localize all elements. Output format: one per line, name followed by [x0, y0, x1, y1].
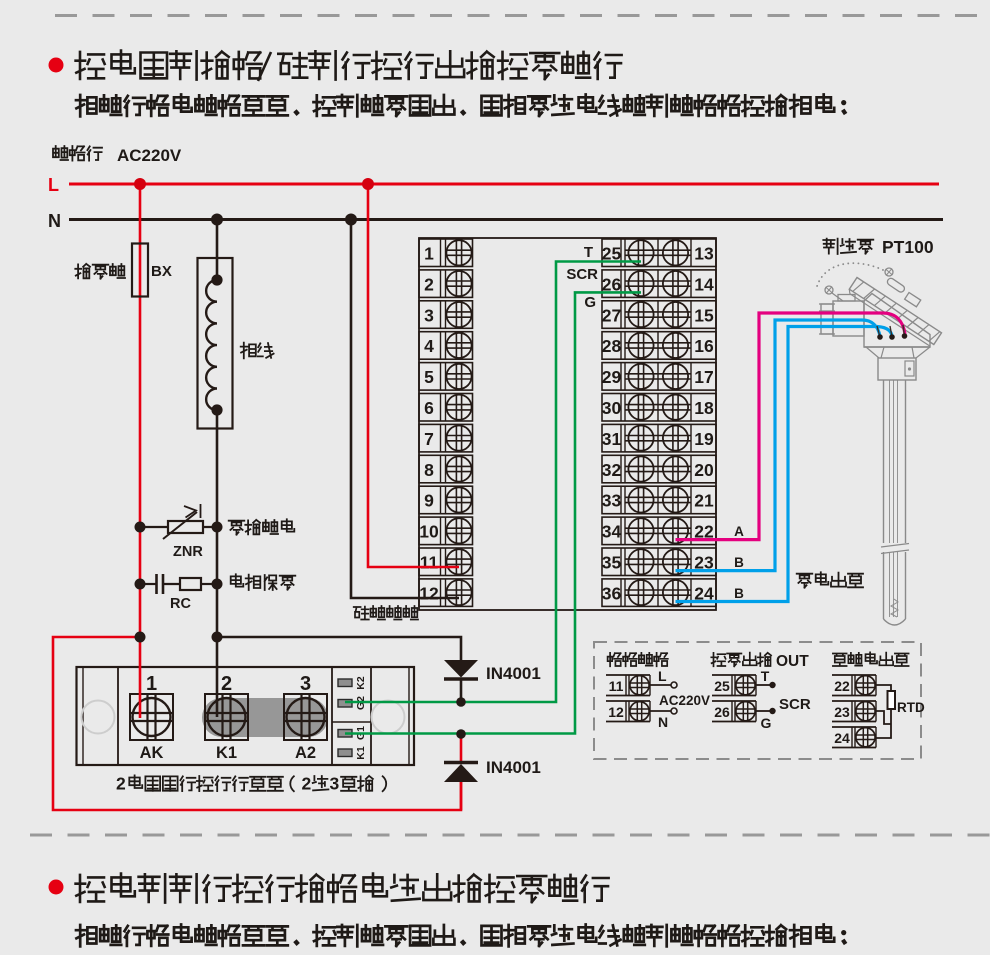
svg-text:SCR: SCR — [779, 696, 811, 713]
svg-text:BX: BX — [151, 263, 172, 280]
svg-text:9: 9 — [424, 491, 434, 511]
svg-text:17: 17 — [694, 367, 713, 387]
svg-text:25: 25 — [714, 678, 730, 694]
svg-text:AK: AK — [140, 744, 164, 762]
svg-text:1: 1 — [424, 244, 434, 264]
svg-text:RTD: RTD — [897, 700, 925, 715]
svg-text:K1: K1 — [355, 746, 367, 760]
svg-text:13: 13 — [694, 244, 714, 264]
svg-text:L: L — [48, 175, 59, 195]
svg-text:28: 28 — [602, 336, 622, 356]
svg-text:26: 26 — [714, 704, 730, 720]
svg-text:A: A — [734, 524, 744, 539]
svg-text:IN4001: IN4001 — [486, 758, 541, 777]
svg-text:4: 4 — [424, 336, 434, 356]
svg-text:20: 20 — [694, 460, 714, 480]
svg-text:22: 22 — [834, 678, 850, 694]
svg-text:10: 10 — [419, 522, 439, 542]
svg-text:2: 2 — [116, 773, 126, 793]
svg-text:18: 18 — [694, 398, 714, 418]
svg-text:3: 3 — [330, 773, 340, 793]
svg-text:AC220V: AC220V — [117, 146, 182, 165]
svg-text:8: 8 — [424, 460, 434, 480]
svg-text:RC: RC — [170, 596, 191, 612]
svg-text:11: 11 — [420, 553, 439, 573]
svg-text:SCR: SCR — [566, 266, 598, 283]
svg-text:IN4001: IN4001 — [486, 664, 541, 683]
svg-text:2: 2 — [424, 274, 434, 294]
svg-text:N: N — [658, 714, 668, 730]
svg-text:1: 1 — [146, 673, 157, 695]
svg-text:12: 12 — [608, 704, 624, 720]
svg-text:35: 35 — [602, 553, 622, 573]
svg-text:11: 11 — [609, 678, 624, 694]
svg-text:12: 12 — [419, 583, 439, 603]
svg-text:21: 21 — [694, 491, 714, 511]
svg-text:16: 16 — [694, 336, 714, 356]
svg-text:T: T — [584, 244, 593, 261]
svg-text:A2: A2 — [295, 744, 316, 762]
svg-text:5: 5 — [424, 367, 434, 387]
svg-text:T: T — [761, 668, 770, 684]
svg-text:29: 29 — [602, 367, 622, 387]
svg-text:B: B — [734, 555, 744, 570]
svg-text:N: N — [48, 211, 61, 231]
svg-text:30: 30 — [602, 398, 622, 418]
svg-text:2: 2 — [302, 773, 312, 793]
svg-text:33: 33 — [602, 491, 622, 511]
svg-text:23: 23 — [834, 704, 850, 720]
svg-text:G: G — [584, 294, 596, 311]
svg-text:2: 2 — [221, 673, 232, 695]
svg-text:AC220V: AC220V — [659, 693, 710, 708]
svg-text:31: 31 — [602, 429, 622, 449]
svg-text:6: 6 — [424, 398, 434, 418]
svg-text:K1: K1 — [216, 744, 237, 762]
svg-text:G: G — [761, 715, 772, 731]
svg-text:ZNR: ZNR — [173, 544, 203, 560]
svg-text:19: 19 — [694, 429, 714, 449]
svg-text:15: 15 — [694, 305, 714, 325]
svg-text:14: 14 — [694, 274, 714, 294]
svg-text:B: B — [734, 586, 744, 601]
svg-text:OUT: OUT — [776, 653, 809, 670]
svg-text:3: 3 — [300, 673, 311, 695]
svg-text:36: 36 — [602, 583, 622, 603]
svg-text:32: 32 — [602, 460, 622, 480]
svg-text:K2: K2 — [355, 676, 367, 690]
svg-text:PT100: PT100 — [882, 237, 934, 257]
svg-text:24: 24 — [834, 730, 850, 746]
svg-text:L: L — [658, 668, 667, 684]
svg-text:7: 7 — [424, 429, 434, 449]
svg-text:34: 34 — [602, 522, 622, 542]
svg-text:27: 27 — [602, 305, 621, 325]
svg-text:3: 3 — [424, 305, 434, 325]
